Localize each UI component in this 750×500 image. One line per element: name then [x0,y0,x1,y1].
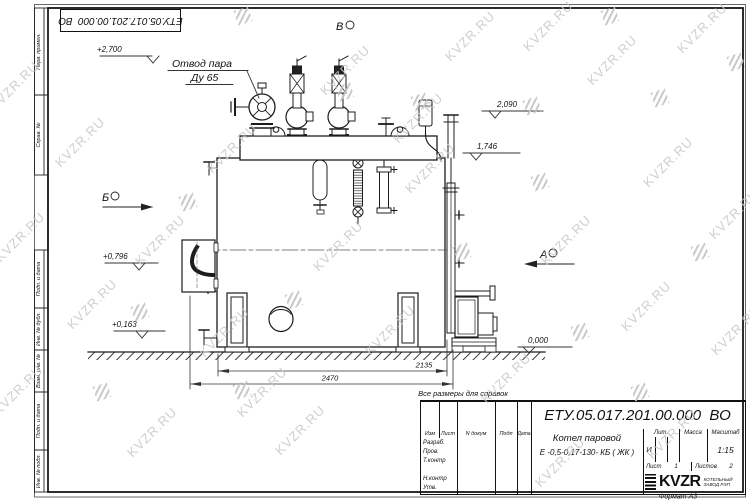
tb-product-name-2: Е -0,5-0,17-130- КБ ( ЖК ) [531,445,643,459]
tb-doc-number: ЕТУ.05.017.201.00.000 ВО [531,401,744,429]
tb-col-ndoc: N докум [457,429,495,438]
tb-row-razrab: Разраб. [423,438,457,447]
view-label-b: Б [102,192,109,204]
elevation-1746: 1,746 [477,142,498,151]
elevation-0000: 0,000 [528,336,549,345]
title-block: Изм Лист N докум Подп Дата Разраб. Пров.… [420,400,746,495]
tb-col-podp: Подп [495,429,517,438]
side-strip-labels: Перв. примен. Справ. № Подп. и дата Инв.… [36,33,42,488]
tb-lit-value: И [643,437,655,462]
doc-number-stamp: ЕТУ.05.017.201.00.000 ВО [60,9,181,32]
tb-lit-label: Лит. [643,429,679,437]
strip-label: Подп. и дата [36,404,42,438]
burner-box [182,240,218,292]
company-subtitle: КОТЕЛЬНЫЙ ЗАВОД РЭП [704,477,733,487]
strip-label: Подп. и дата [36,262,42,296]
water-gauge-glass [353,152,363,224]
tb-list-value: 1 [669,462,683,471]
drawing-sheet: KVZR.RUKVZR.RUKVZR.RUKVZR.RUKVZR.RUKVZR.… [0,0,750,500]
view-label-a: А [539,249,547,261]
tb-scale-value: 1:15 [707,437,744,462]
tb-row-tkontr: Т.контр [423,456,457,465]
tb-row-utv: Утв. [423,483,457,492]
tb-row-prov: Пров. [423,447,457,456]
strip-label: Инв. № дубл. [36,312,42,346]
reference-note: Все размеры для справок [418,389,508,398]
tb-product-name-1: Котел паровой [531,431,643,445]
support-leg-left [225,293,249,352]
tb-listov-label: Листов [695,462,721,471]
ground-line [88,352,545,360]
tb-masshtab-label: Масштаб [707,429,744,437]
strip-label: Справ. № [36,122,42,147]
view-label-v: В [336,21,343,33]
tb-col-list: Лист [439,429,457,438]
tb-massa-label: Масса [679,429,707,437]
elevation-0796: +0,796 [103,252,128,261]
tb-col-izm: Изм [421,429,439,438]
strip-label: Взам. инв. № [36,354,42,388]
right-riser [444,115,458,158]
steam-label-line2: Ду 65 [190,72,219,84]
steam-outlet-valve [231,83,275,136]
tb-row-nkontr: Н.контр [423,474,457,483]
dim-2135: 2135 [415,361,434,370]
coil-icon [645,474,656,490]
steam-label-line1: Отвод пара [172,58,232,70]
fan-unit [452,297,497,352]
company-logo: KVZR КОТЕЛЬНЫЙ ЗАВОД РЭП [645,472,743,492]
manhole [269,307,293,332]
tb-list-label: Лист [646,462,668,471]
tb-col-data: Дата [517,429,531,438]
dim-2470: 2470 [321,374,340,383]
steam-drum [240,136,437,160]
tb-listov-value: 2 [723,462,739,471]
elevation-0163: +0,163 [112,320,137,329]
support-leg-right [396,293,420,352]
strip-label: Инв. № подл. [36,454,42,488]
strip-label: Перв. примен. [36,33,42,70]
safety-valve-2 [328,56,355,135]
company-name: KVZR [659,474,701,490]
elevation-2700: +2,700 [97,45,122,54]
elevation-2090: 2,090 [496,100,518,109]
safety-valve-1 [286,56,313,135]
